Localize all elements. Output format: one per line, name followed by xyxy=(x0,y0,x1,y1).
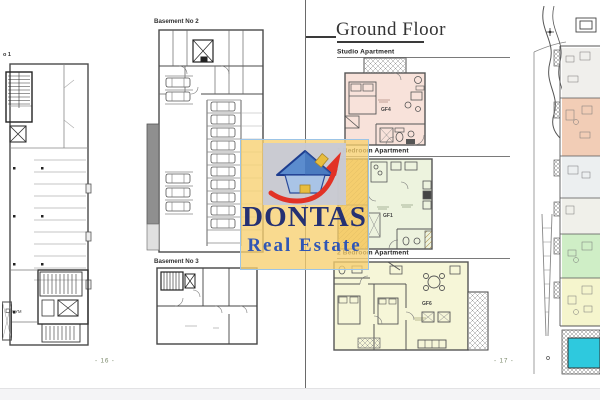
two-bedroom-apartment-plan: GF6 xyxy=(330,258,492,356)
basement-1-label-fragment: o 1 xyxy=(3,52,11,58)
bottom-margin-bar xyxy=(0,388,600,400)
ground-floor-title: Ground Floor xyxy=(336,19,446,41)
door-arcs xyxy=(175,290,247,328)
column-dots xyxy=(13,167,44,314)
one-bed-unit-code: GF1 xyxy=(383,213,393,219)
basement-3-label: Basement No 3 xyxy=(154,258,199,265)
title-underline xyxy=(337,41,424,43)
studio-apartment-plan: GF4 xyxy=(338,56,432,150)
terrace-hatch xyxy=(468,292,488,350)
studio-apartment-label: Studio Apartment xyxy=(337,48,394,55)
ramp xyxy=(147,124,159,250)
page-number-17: - 17 - xyxy=(494,357,514,364)
ramp xyxy=(542,214,552,336)
studio-unit-code: GF4 xyxy=(381,107,391,113)
parking-bay-lines xyxy=(34,160,86,280)
page-divider-line xyxy=(305,0,306,388)
title-rule-left xyxy=(306,36,336,38)
stairwell xyxy=(161,272,195,290)
basement-2-label: Basement No 2 xyxy=(154,18,199,25)
two-bed-unit-area xyxy=(334,262,468,350)
rug-hatch xyxy=(358,338,380,348)
elevator-top xyxy=(10,126,26,142)
floorplan-document-page: o 1 xyxy=(0,0,600,400)
one-bed-unit-area xyxy=(368,159,432,249)
gym-label: GYM xyxy=(12,309,22,314)
one-bedroom-apartment-plan: GF1 xyxy=(335,153,443,259)
parked-cars xyxy=(166,78,235,228)
two-bed-unit-code: GF6 xyxy=(422,301,432,307)
stair-core xyxy=(193,40,213,62)
page-number-16: - 16 - xyxy=(95,357,115,364)
balcony-hatch xyxy=(364,58,406,73)
property-boundary xyxy=(534,42,566,374)
core-bottom xyxy=(38,270,88,342)
balcony-hatches xyxy=(554,50,560,298)
basement-3-floor-plan: Basement No 3 xyxy=(145,256,270,348)
basement-1-floor-plan: o 1 xyxy=(2,48,94,348)
site-key-plan xyxy=(532,6,600,378)
basement-2-floor-plan: Basement No 2 xyxy=(145,16,270,258)
building-units xyxy=(562,48,600,326)
pool xyxy=(562,330,600,374)
